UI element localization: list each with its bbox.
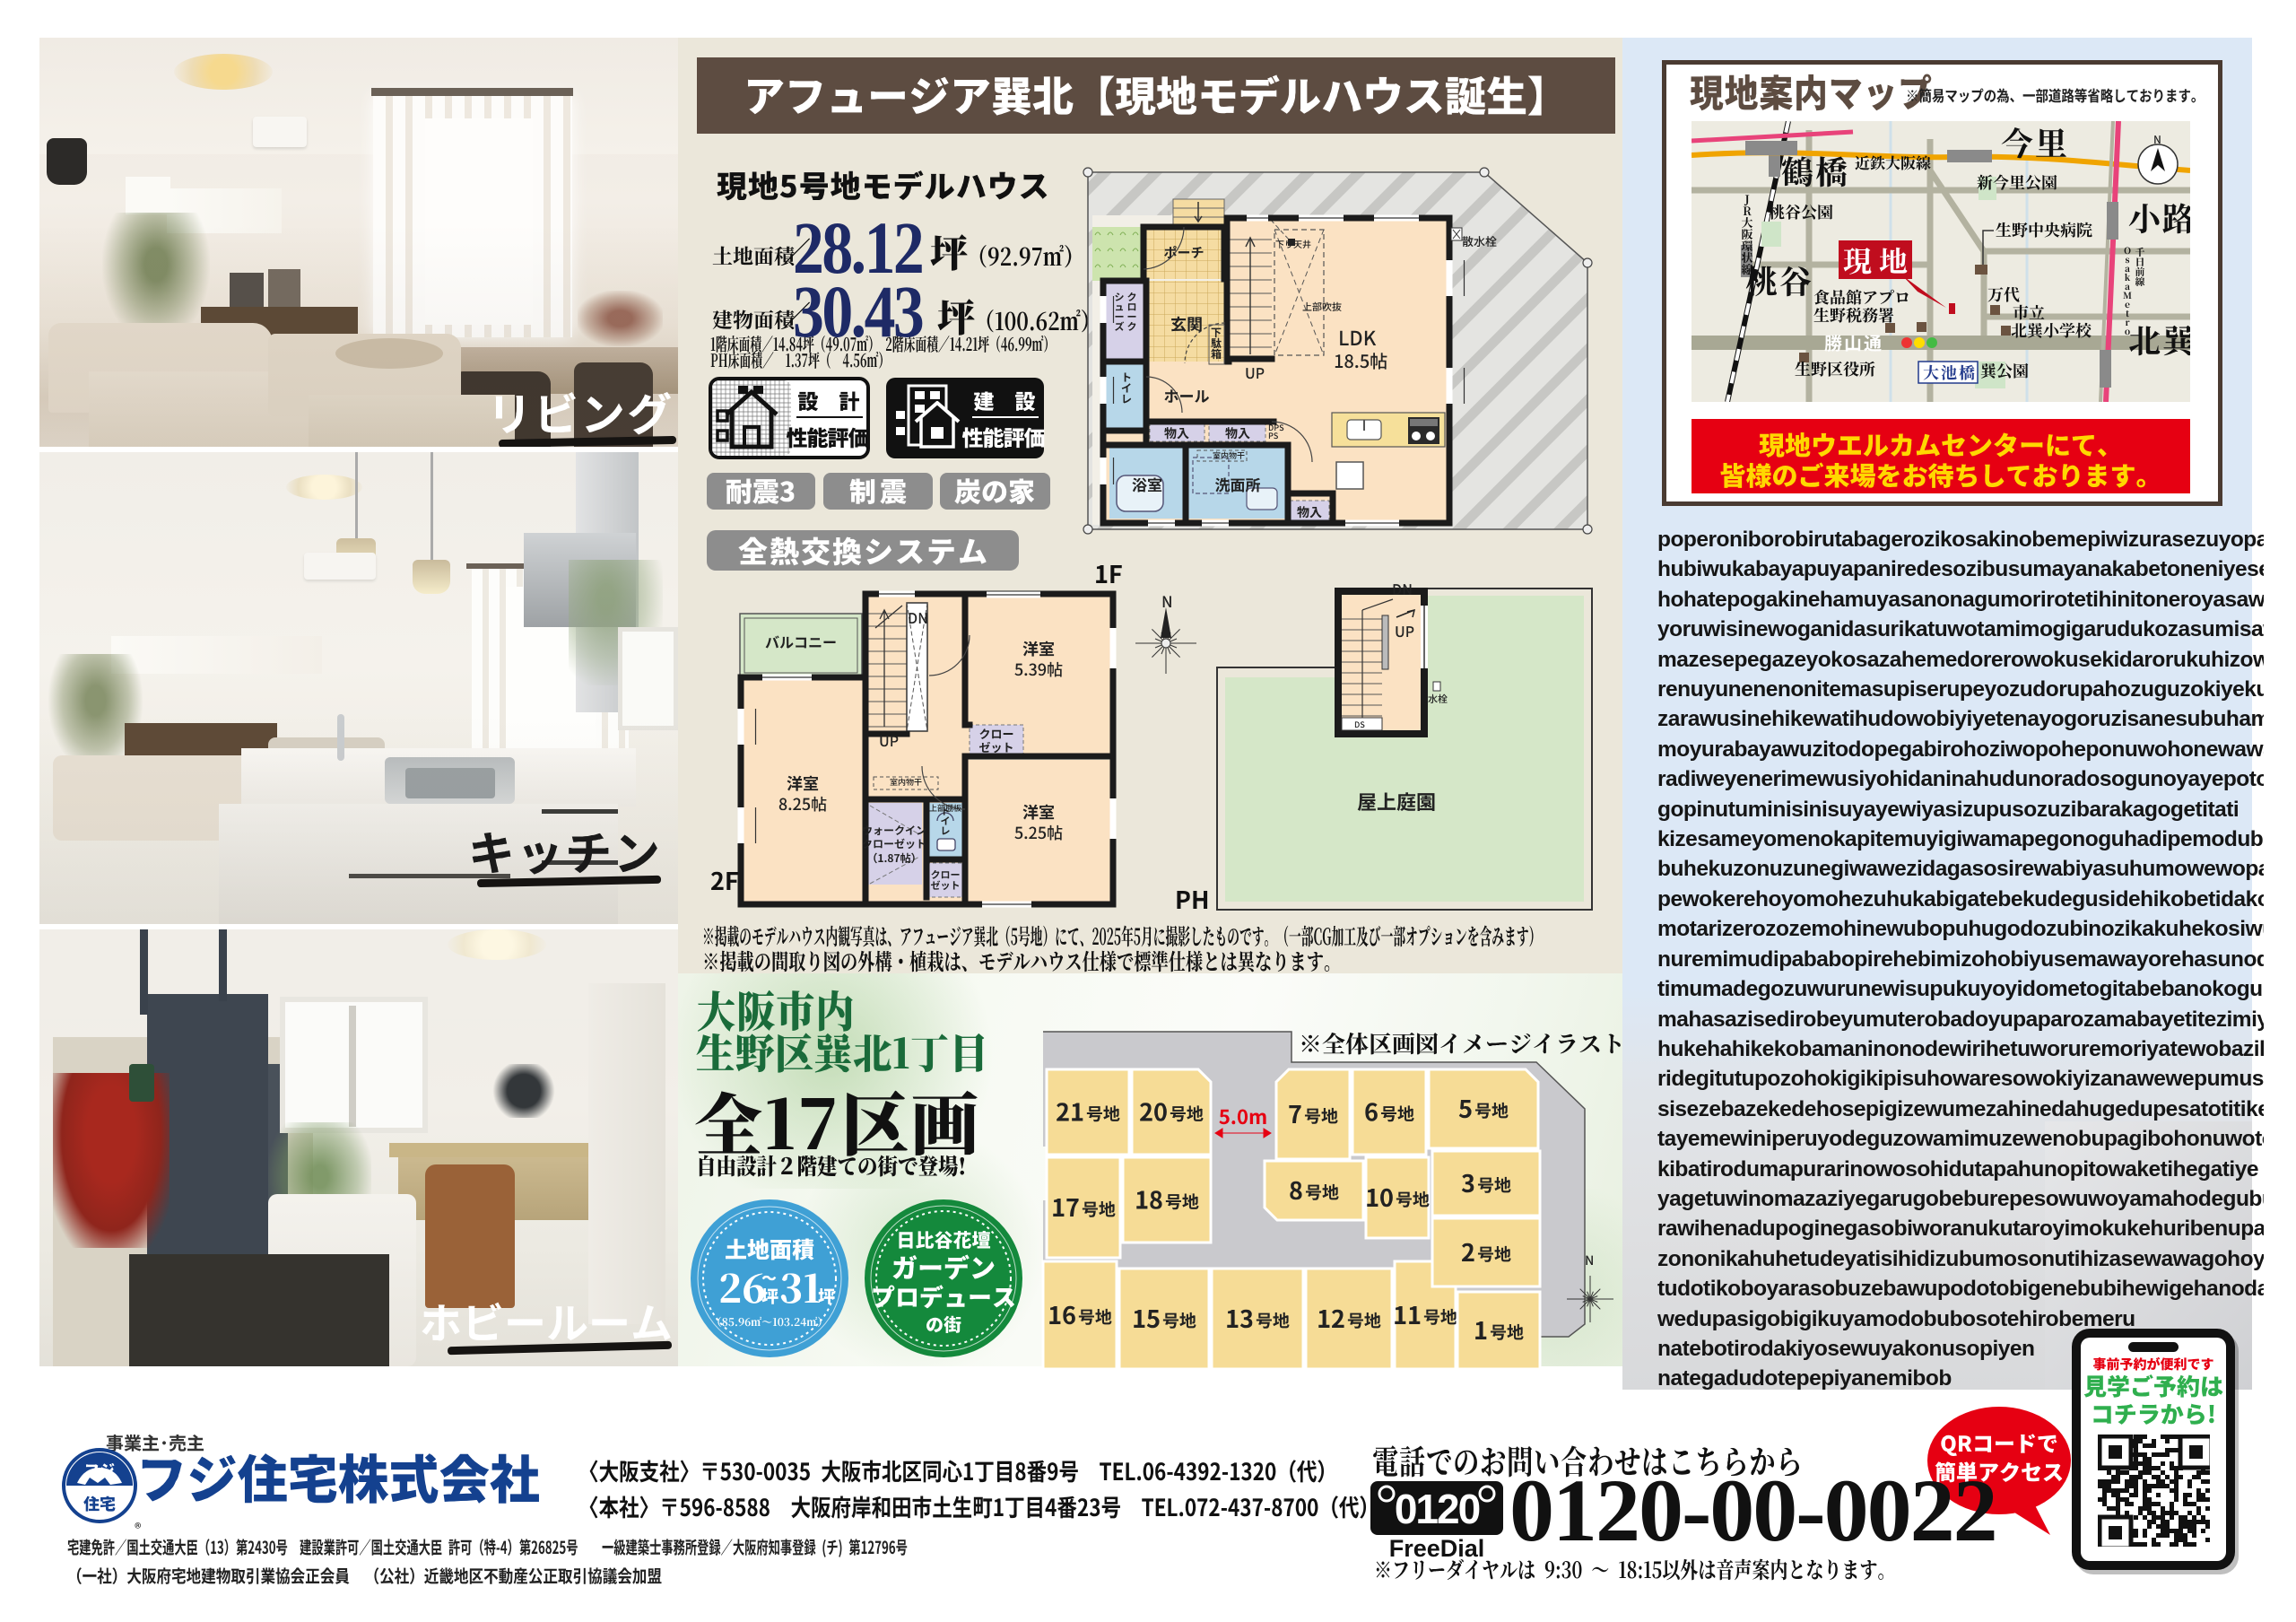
svg-text:FreeDial: FreeDial [1389,1535,1485,1562]
svg-text:0120-00-0022: 0120-00-0022 [1509,1461,1996,1560]
svg-text:0120: 0120 [1395,1486,1480,1532]
